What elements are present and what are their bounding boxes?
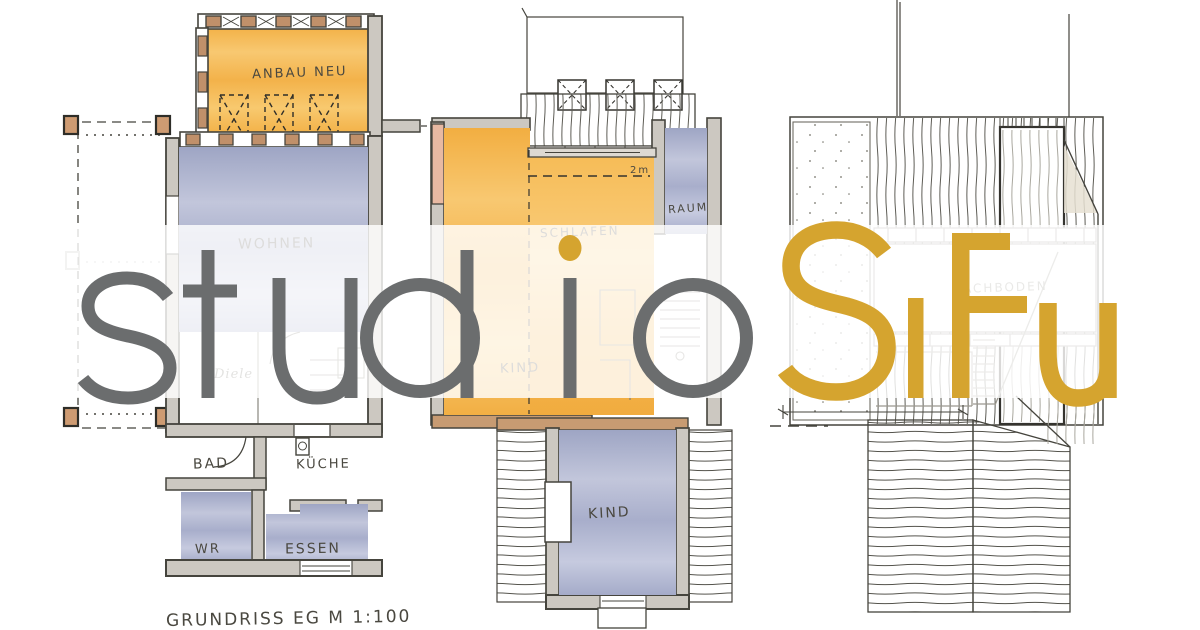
letter-u xyxy=(279,278,351,398)
letter-S xyxy=(785,230,887,392)
letter-u2 xyxy=(1048,303,1108,398)
studio-sifu-logo xyxy=(0,0,1200,630)
letter-i2 xyxy=(908,298,924,398)
letter-o xyxy=(640,285,747,392)
letter-F xyxy=(952,233,1027,398)
social-card: ANBAU NEU xyxy=(0,0,1200,630)
logo-sifu-wordmark xyxy=(785,230,1108,398)
letter-d-bowl xyxy=(367,285,474,392)
logo-studio-wordmark xyxy=(83,235,747,398)
letter-t xyxy=(183,250,237,398)
letter-s xyxy=(83,278,170,398)
letter-i-dot xyxy=(559,235,582,261)
